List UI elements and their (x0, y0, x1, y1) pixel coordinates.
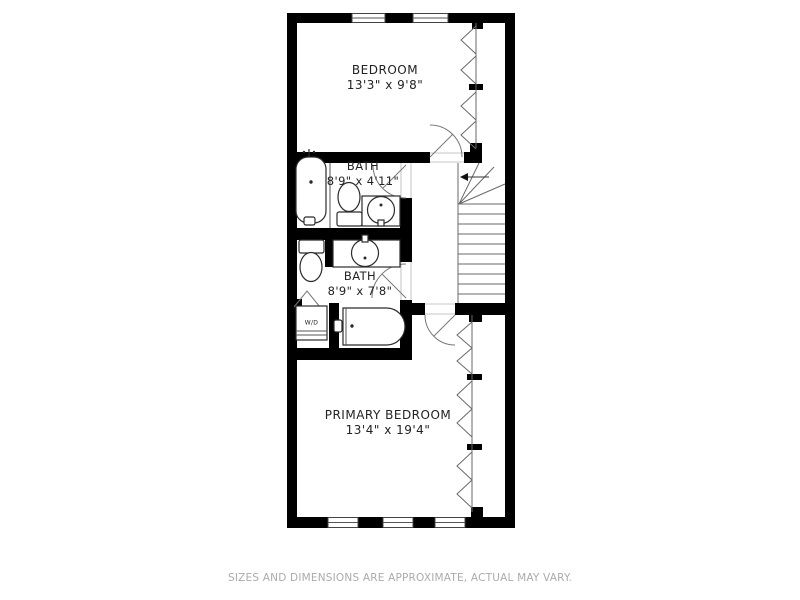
bath2-dimensions: 8'9" x 7'8" (328, 284, 393, 298)
wd-label: W/D (305, 320, 319, 327)
sink1-tap (378, 220, 384, 226)
toilet-1 (337, 183, 362, 227)
stub-window-pri-2 (467, 444, 482, 450)
staircase (458, 163, 505, 303)
bedroom-dimensions: 13'3" x 9'8" (347, 78, 424, 92)
bathtub-1 (296, 149, 326, 225)
side-windows (457, 23, 476, 512)
stub-window-pri-1 (467, 374, 482, 380)
sink2-tap (362, 235, 368, 242)
primary-door (425, 315, 455, 345)
wall-hall-south-right (455, 303, 505, 315)
bedroom-label: BEDROOM (352, 63, 418, 77)
window-top-2 (413, 14, 448, 23)
stair-winders (459, 163, 505, 204)
stair-direction-arrow (460, 173, 489, 181)
bathtub-2 (334, 308, 405, 345)
disclaimer-text: SIZES AND DIMENSIONS ARE APPROXIMATE, AC… (228, 572, 572, 584)
floor-plan: W/D BEDROOM 13'3" x 9'8" BATH 8'9" x 4'1… (0, 0, 800, 600)
sink-vanity-1 (362, 196, 400, 226)
stub-window-pri-top (469, 315, 482, 322)
window-top-1 (352, 14, 385, 23)
wall-between-baths (287, 228, 412, 240)
bath1-dimensions: 8'9" x 4'11" (327, 174, 399, 188)
primary-bedroom-dimensions: 13'4" x 19'4" (346, 423, 431, 437)
wall-bedroom-south-stub (464, 152, 482, 163)
sink-vanity-2 (333, 235, 400, 267)
bath1-label: BATH (347, 159, 379, 173)
washer-dryer: W/D (296, 306, 327, 340)
bedroom-door (430, 125, 462, 157)
stub-window-pri-bottom (471, 507, 483, 517)
toilet-2 (299, 240, 324, 282)
window-bottom-3 (435, 518, 465, 528)
tub2-drain (350, 324, 353, 327)
stair-treads (458, 204, 505, 294)
wall-top (287, 13, 515, 23)
tub2-faucet (334, 320, 342, 332)
primary-window-chevrons (457, 322, 472, 508)
tub1-faucet (304, 217, 315, 225)
wall-left (287, 13, 297, 528)
stub-vanity (325, 240, 333, 267)
bath2-label: BATH (344, 269, 376, 283)
window-bottom-1 (328, 518, 358, 528)
tub1-drain (309, 180, 312, 183)
wall-hall-south-left (412, 303, 425, 315)
wall-bath-south (287, 348, 412, 360)
wall-right (505, 13, 515, 528)
window-bottom-2 (383, 518, 413, 528)
primary-bedroom-label: PRIMARY BEDROOM (325, 408, 452, 422)
